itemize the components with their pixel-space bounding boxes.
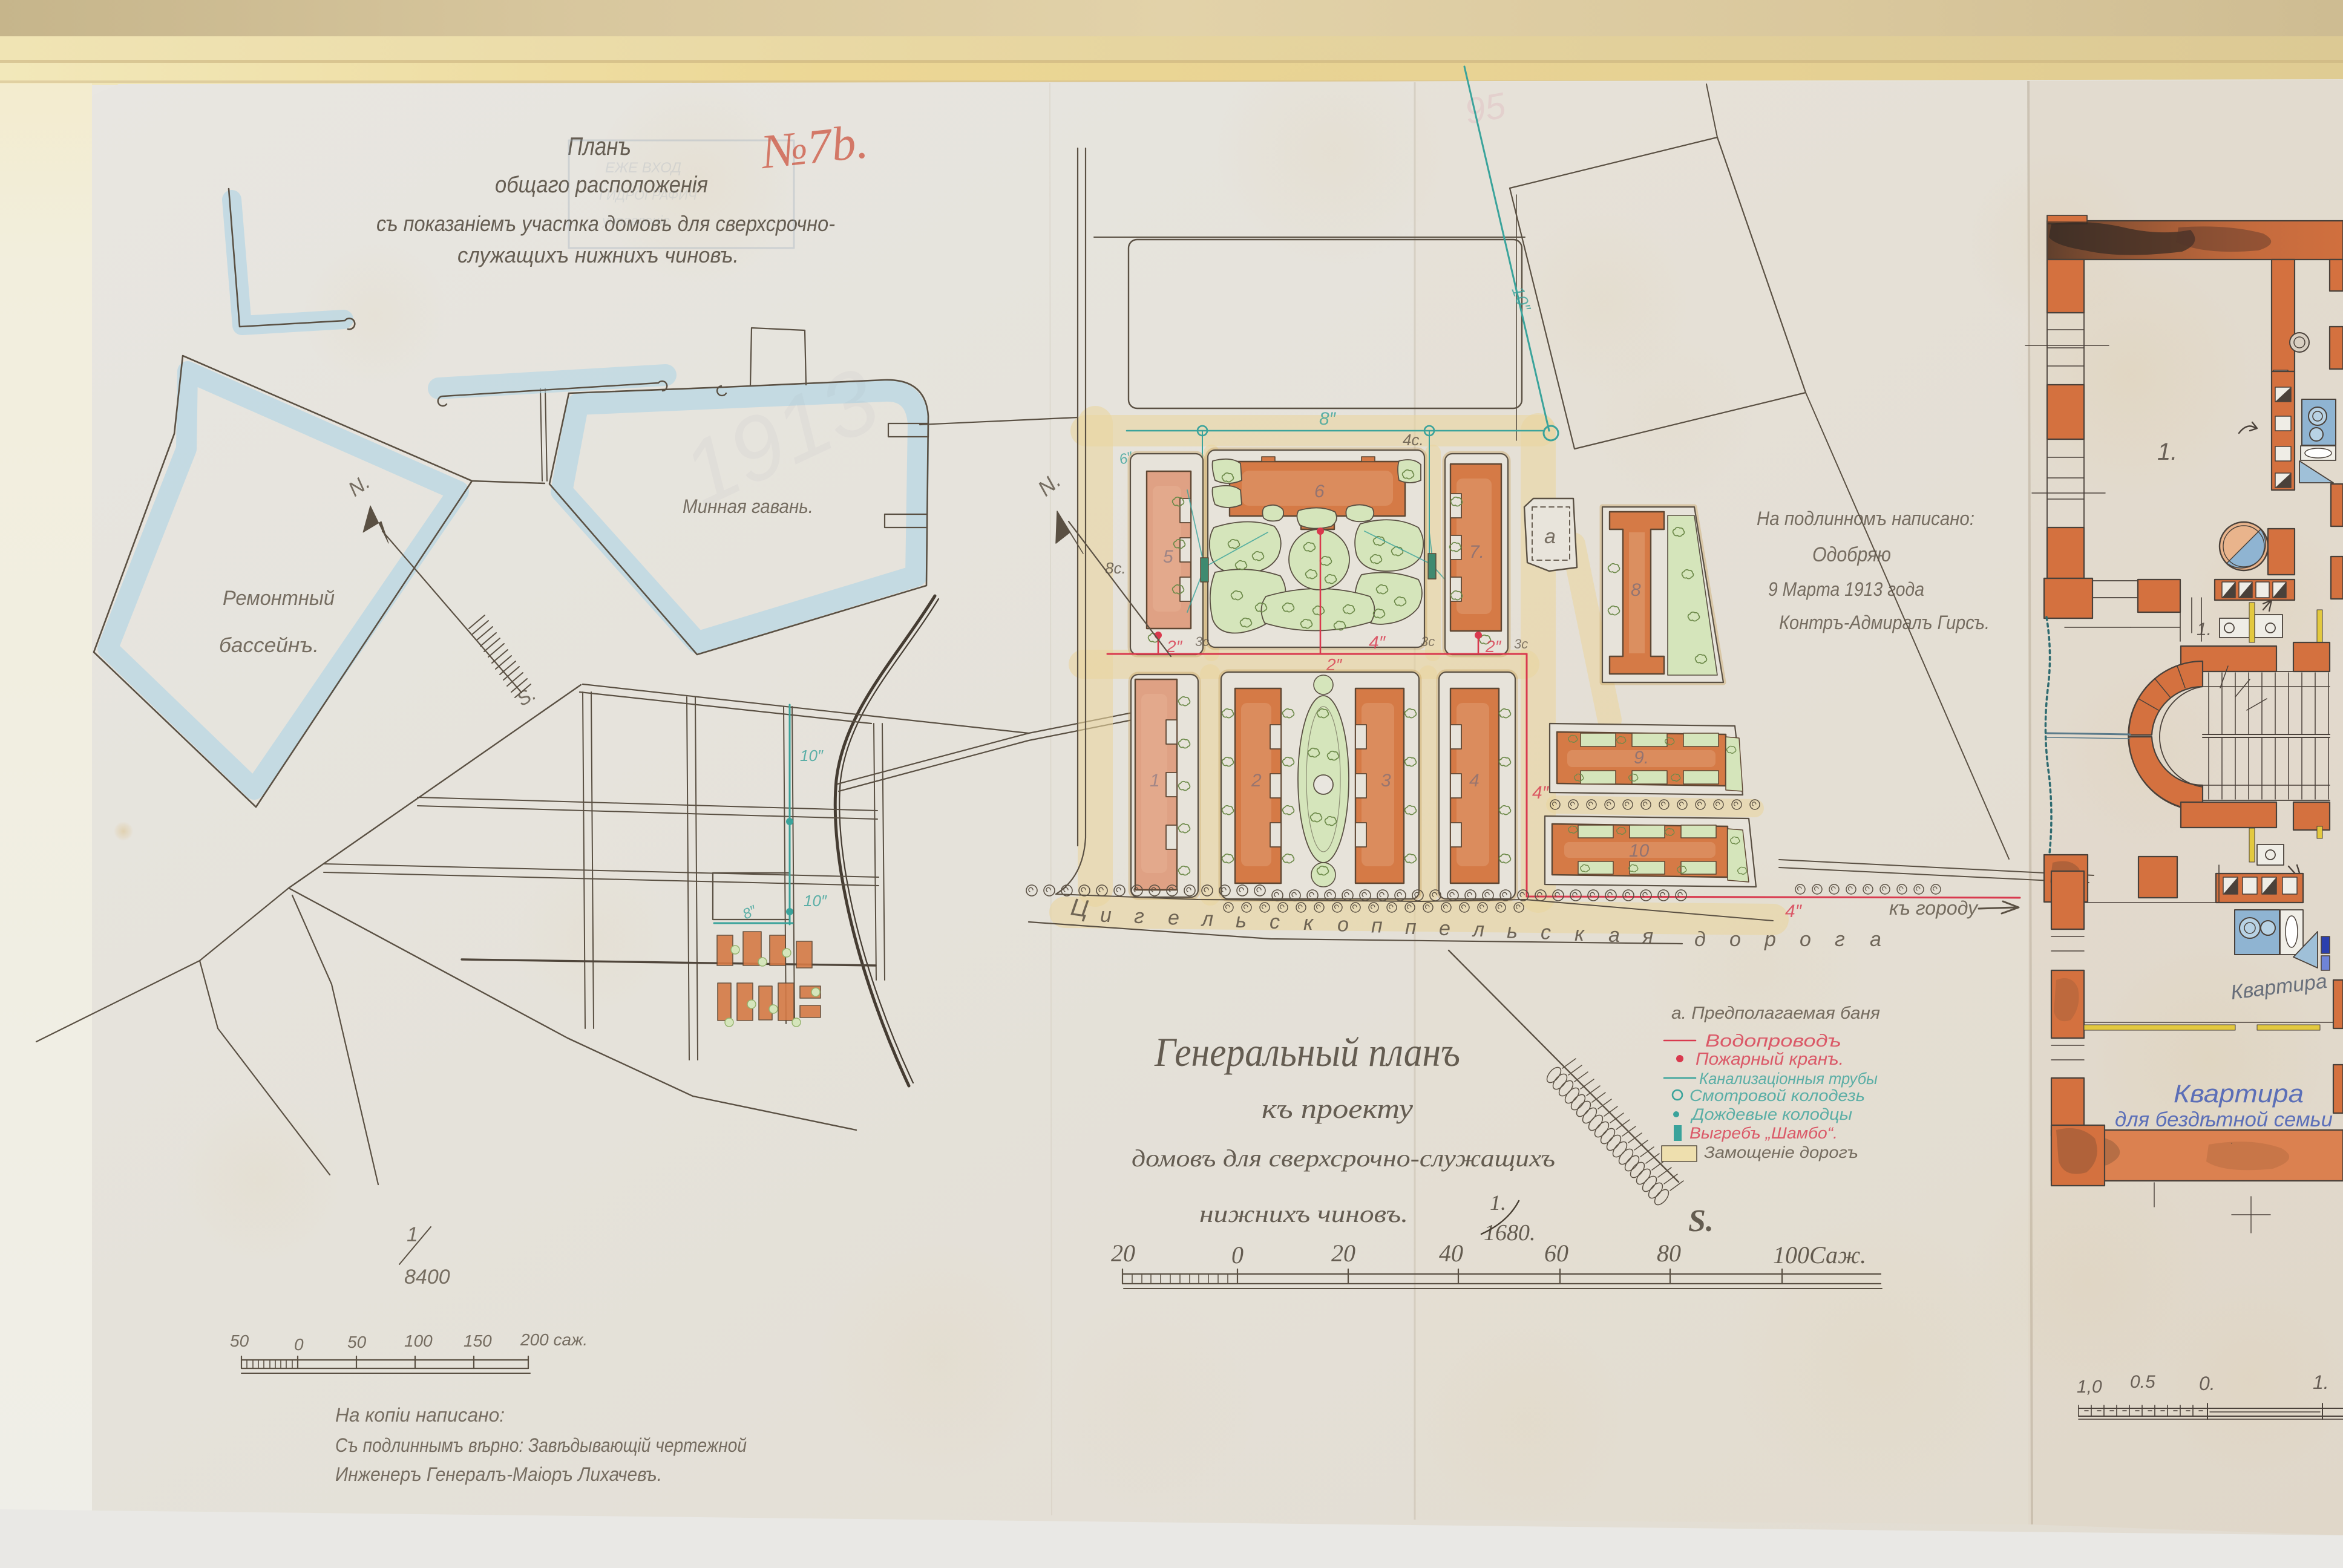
svg-text:к: к: [1575, 923, 1585, 946]
svg-text:е: е: [1168, 906, 1179, 929]
svg-text:150: 150: [464, 1331, 492, 1350]
svg-text:бассейнъ.: бассейнъ.: [219, 634, 319, 657]
svg-text:0: 0: [1231, 1241, 1244, 1269]
svg-text:Планъ: Планъ: [568, 132, 631, 160]
svg-text:Генеральный планъ: Генеральный планъ: [1154, 1029, 1460, 1075]
svg-text:100Саж.: 100Саж.: [1773, 1241, 1866, 1269]
svg-text:л: л: [1201, 908, 1213, 931]
svg-text:3с: 3с: [1195, 634, 1209, 649]
svg-text:40: 40: [1439, 1240, 1463, 1267]
svg-text:Водопроводъ: Водопроводъ: [1705, 1031, 1841, 1051]
svg-text:Замощеніе дорогъ: Замощеніе дорогъ: [1704, 1143, 1858, 1161]
svg-text:п: п: [1371, 915, 1383, 938]
svg-text:95: 95: [1462, 85, 1509, 132]
svg-text:домовъ для сверхсрочно-служащи: домовъ для сверхсрочно-служащихъ: [1132, 1145, 1555, 1172]
svg-text:На копіи написано:: На копіи написано:: [335, 1404, 505, 1426]
svg-text:Съ подлиннымъ вѣрно: Завѣдываю: Съ подлиннымъ вѣрно: Завѣдывающій чертеж…: [335, 1434, 747, 1456]
svg-text:для бездѣтной семьи: для бездѣтной семьи: [2115, 1108, 2333, 1131]
svg-text:8400: 8400: [404, 1266, 450, 1289]
svg-text:a: a: [1544, 525, 1556, 548]
svg-text:На подлинномъ написано:: На подлинномъ написано:: [1757, 508, 1974, 529]
svg-text:4: 4: [1469, 771, 1480, 791]
svg-text:Канализаціонныя трубы: Канализаціонныя трубы: [1699, 1070, 1878, 1088]
svg-text:5: 5: [1163, 547, 1173, 567]
svg-text:50: 50: [230, 1331, 249, 1350]
svg-text:и: и: [1100, 904, 1112, 927]
svg-text:п: п: [1405, 916, 1417, 939]
svg-text:1680.: 1680.: [1484, 1220, 1536, 1246]
svg-text:20: 20: [1331, 1240, 1355, 1267]
svg-text:с: с: [1270, 910, 1280, 933]
svg-text:1.: 1.: [2197, 619, 2212, 639]
svg-text:нижнихъ чиновъ.: нижнихъ чиновъ.: [1199, 1200, 1408, 1227]
svg-text:къ городу: къ городу: [1889, 897, 1979, 919]
svg-text:60: 60: [1544, 1240, 1568, 1267]
svg-text:г: г: [1134, 905, 1144, 928]
svg-text:Одобряю: Одобряю: [1812, 543, 1891, 566]
svg-text:1.: 1.: [1490, 1191, 1506, 1215]
svg-text:Смотровой колодезь: Смотровой колодезь: [1689, 1086, 1865, 1105]
svg-text:2″: 2″: [1485, 637, 1502, 656]
svg-text:1,0: 1,0: [2077, 1377, 2102, 1397]
svg-text:3с: 3с: [1421, 634, 1435, 649]
svg-text:ь: ь: [1236, 909, 1247, 932]
svg-text:с: с: [1541, 921, 1551, 944]
svg-text:а: а: [1608, 924, 1620, 947]
svg-text:ЕЖЕ ВХОД: ЕЖЕ ВХОД: [605, 160, 681, 176]
svg-text:50: 50: [347, 1333, 367, 1351]
svg-text:Ремонтный: Ремонтный: [223, 587, 335, 610]
svg-text:20: 20: [1111, 1240, 1135, 1267]
svg-text:6: 6: [1314, 482, 1325, 501]
svg-text:1.: 1.: [2157, 439, 2177, 465]
svg-text:8: 8: [1631, 580, 1641, 600]
svg-text:10″: 10″: [804, 892, 827, 910]
svg-text:4″: 4″: [1532, 783, 1550, 803]
svg-text:Инженеръ Генералъ-Маіоръ Лиха: Инженеръ Генералъ-Маіоръ Лихачевъ.: [335, 1463, 662, 1485]
svg-text:9 Марта 1913 года: 9 Марта 1913 года: [1768, 578, 1924, 600]
svg-text:0.: 0.: [2199, 1373, 2215, 1394]
svg-text:Контръ-Адмиралъ Гирсъ.: Контръ-Адмиралъ Гирсъ.: [1779, 612, 1990, 633]
svg-text:р: р: [1764, 928, 1776, 951]
svg-text:4″: 4″: [1785, 901, 1803, 921]
svg-text:ь: ь: [1507, 920, 1518, 942]
svg-text:1.: 1.: [2313, 1371, 2329, 1393]
svg-text:4с.: 4с.: [1403, 431, 1424, 449]
svg-text:200 саж.: 200 саж.: [520, 1330, 588, 1349]
svg-text:1: 1: [1150, 771, 1160, 791]
svg-text:е: е: [1439, 917, 1450, 940]
svg-text:управленіе: управленіе: [601, 213, 670, 228]
svg-text:я: я: [1642, 925, 1653, 948]
svg-text:1: 1: [407, 1223, 418, 1246]
svg-text:Выгребъ „Шамбо“.: Выгребъ „Шамбо“.: [1689, 1124, 1838, 1142]
svg-text:9.: 9.: [1634, 748, 1649, 768]
svg-text:3с: 3с: [1514, 636, 1528, 652]
svg-text:л: л: [1472, 918, 1484, 941]
svg-text:10″: 10″: [800, 746, 824, 765]
svg-text:Дождевые колодцы: Дождевые колодцы: [1690, 1105, 1852, 1123]
svg-text:4″: 4″: [1369, 633, 1386, 653]
svg-text:№7b.: №7b.: [758, 115, 871, 179]
svg-text:к: к: [1303, 912, 1314, 935]
svg-text:о: о: [1800, 928, 1811, 951]
svg-text:г: г: [1835, 928, 1845, 951]
svg-text:8″: 8″: [1319, 409, 1337, 429]
svg-text:Квартира: Квартира: [2174, 1079, 2304, 1108]
svg-text:о: о: [1729, 928, 1741, 951]
svg-text:къ проекту: къ проекту: [1262, 1093, 1414, 1124]
svg-text:0: 0: [294, 1335, 304, 1354]
svg-text:10: 10: [1629, 841, 1650, 861]
svg-text:Пожарный кранъ.: Пожарный кранъ.: [1696, 1050, 1844, 1069]
svg-text:3: 3: [1381, 771, 1391, 791]
svg-text:ГИДРОГРАФИЧ: ГИДРОГРАФИЧ: [599, 188, 697, 203]
svg-text:80: 80: [1657, 1240, 1681, 1267]
svg-text:а: а: [1870, 928, 1881, 951]
svg-text:7.: 7.: [1469, 542, 1484, 562]
svg-text:о: о: [1337, 913, 1349, 936]
svg-text:Ц: Ц: [1069, 893, 1090, 923]
svg-text:д: д: [1694, 928, 1706, 951]
svg-text:a. Предполагаемая баня: a. Предполагаемая баня: [1671, 1004, 1880, 1023]
svg-text:2: 2: [1251, 771, 1262, 791]
svg-text:S.: S.: [1688, 1204, 1714, 1238]
svg-text:100: 100: [404, 1331, 433, 1350]
svg-text:0.5: 0.5: [2130, 1372, 2155, 1392]
svg-text:служащихъ нижнихъ чиновъ.: служащихъ нижнихъ чиновъ.: [457, 243, 739, 267]
